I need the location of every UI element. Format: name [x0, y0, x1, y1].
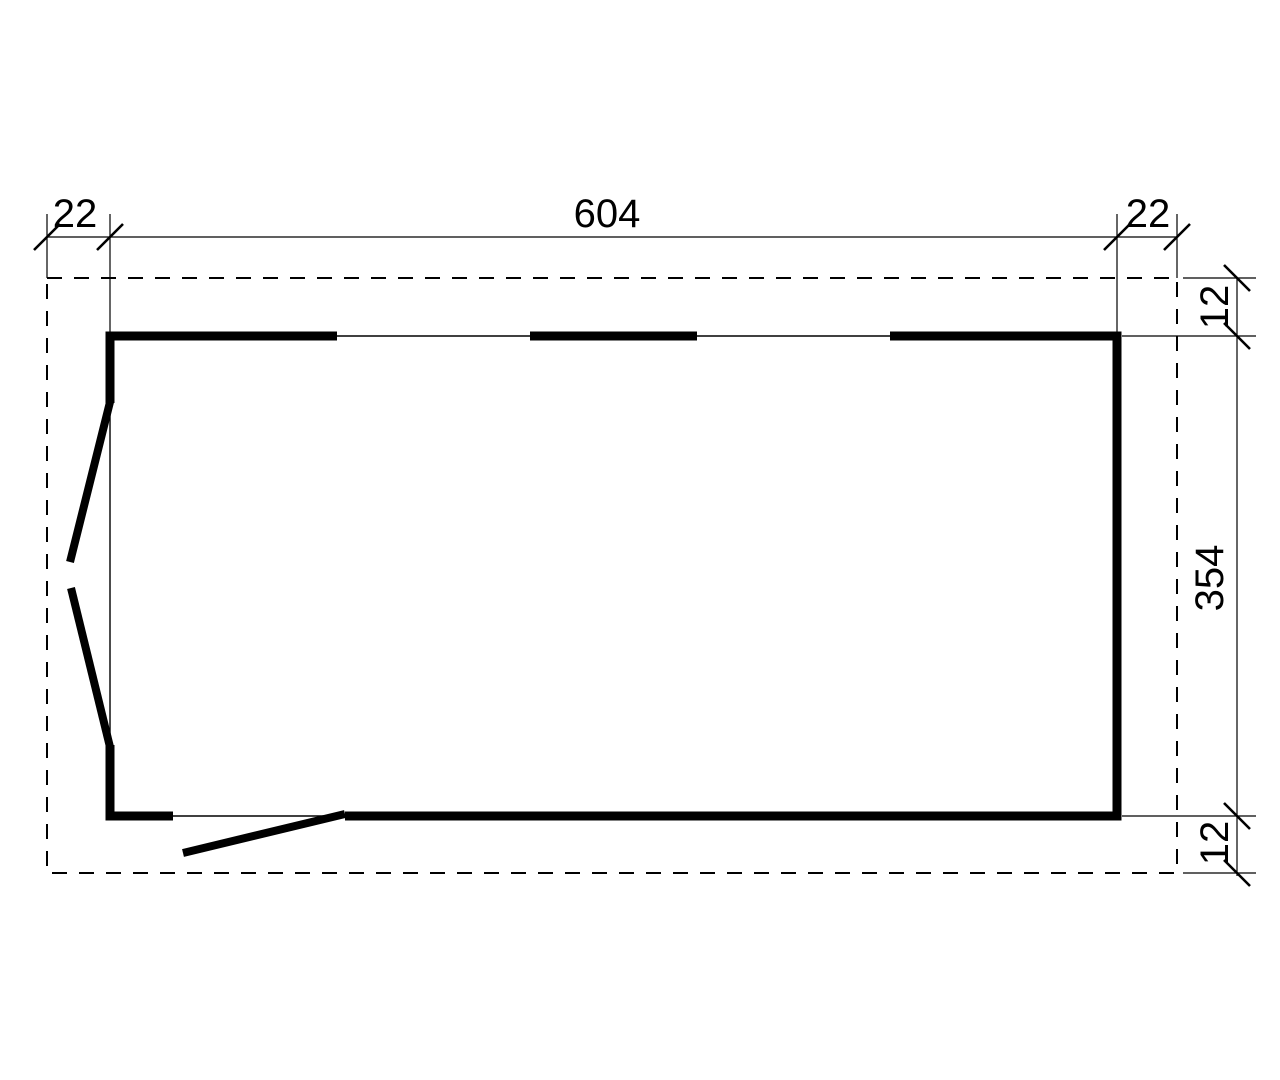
- roof-overhang-outline: [47, 278, 1177, 873]
- walls: [110, 336, 1117, 816]
- right-dimension-chain: 12 354 12: [1122, 265, 1256, 886]
- wall-bottom-left-segment: [110, 745, 173, 816]
- top-dimension-chain: 22 604 22: [34, 192, 1190, 332]
- dim-label-right-top-offset: 12: [1193, 285, 1237, 330]
- left-door-upper-leaf: [70, 402, 110, 562]
- bottom-door-leaf: [183, 814, 345, 853]
- dim-label-top-width: 604: [574, 192, 641, 236]
- left-door-lower-leaf: [71, 588, 110, 747]
- dim-label-right-height: 354: [1188, 545, 1232, 612]
- dim-label-right-bottom-offset: 12: [1193, 821, 1237, 866]
- dim-label-top-right-offset: 22: [1126, 192, 1171, 236]
- dim-label-top-left-offset: 22: [53, 192, 98, 236]
- wall-top-left-segment: [110, 336, 337, 403]
- wall-top-right-right-bottom-segment: [345, 336, 1117, 816]
- floor-plan-drawing: 22 604 22 12 354 12: [0, 0, 1280, 1080]
- opening-lines: [110, 336, 1117, 816]
